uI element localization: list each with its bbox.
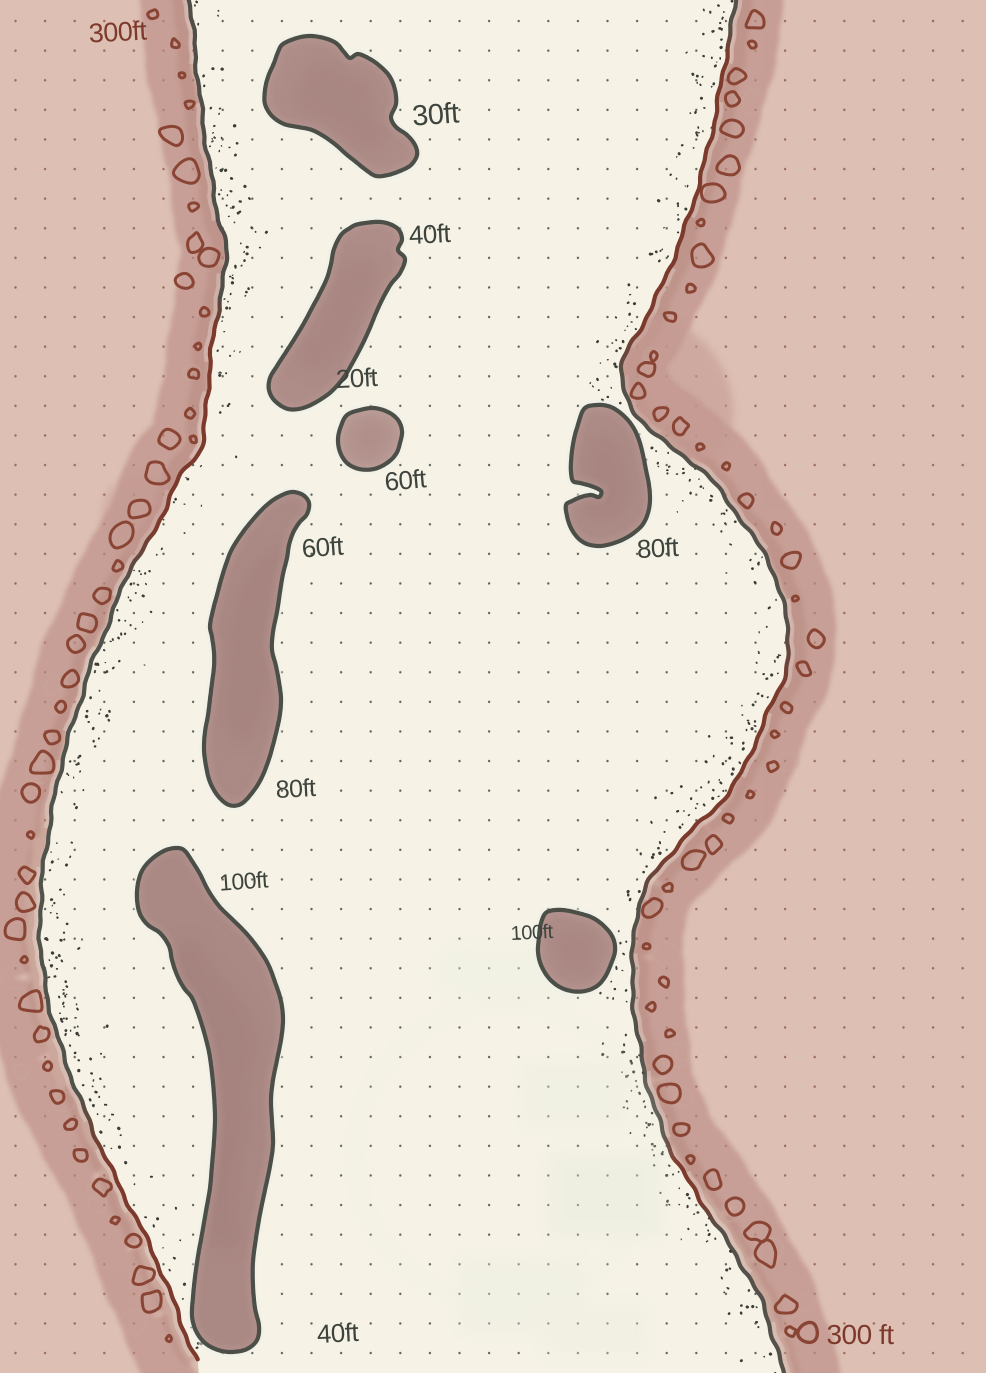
svg-text:80ft: 80ft [275,774,317,804]
svg-text:300 ft: 300 ft [826,1319,894,1350]
svg-text:20ft: 20ft [335,362,379,394]
svg-text:100ft: 100ft [218,866,269,895]
svg-text:300ft: 300ft [88,15,148,48]
svg-text:40ft: 40ft [408,218,452,250]
svg-text:60ft: 60ft [383,463,428,497]
svg-text:40ft: 40ft [316,1317,360,1349]
svg-text:60ft: 60ft [301,531,346,564]
svg-text:100ft: 100ft [510,921,554,945]
svg-text:30ft: 30ft [411,97,460,132]
svg-text:80ft: 80ft [636,532,680,564]
